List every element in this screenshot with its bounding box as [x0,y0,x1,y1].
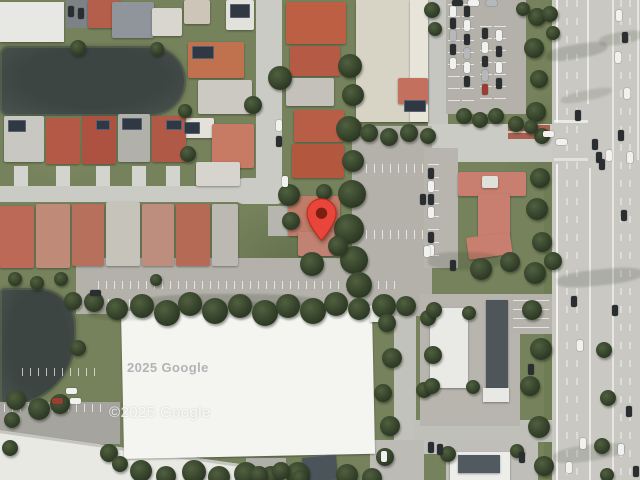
paved-pad [96,166,110,186]
tree [342,150,364,172]
tree [278,184,300,206]
car [575,110,581,121]
car [464,76,470,87]
car [633,466,639,477]
parking-line [390,164,391,173]
tree [530,168,550,188]
parking-line [94,368,95,376]
parking-line [202,281,203,289]
car [66,388,77,394]
car [468,0,479,6]
parking-line [122,281,123,289]
tree [396,296,416,316]
parking-line [398,230,399,239]
tree [250,466,268,480]
car [464,48,470,59]
map-watermark: 2025 Google [127,360,209,375]
parking-line [394,281,395,289]
parking-line [210,281,211,289]
house-roof [46,118,80,164]
car [616,10,622,21]
parking-line [30,368,31,376]
parking-line [84,404,85,412]
parking-line [422,230,423,239]
paved-pad [56,166,70,186]
parking-line [274,281,275,289]
parking-line [378,281,379,289]
parking-line [462,88,474,89]
car [482,56,488,67]
tree [272,462,290,480]
car [90,290,101,296]
car [428,194,434,205]
tree [424,346,442,364]
car [482,42,488,53]
tree [112,456,128,472]
house-roof [106,202,140,266]
tree [466,380,480,394]
car [599,159,605,170]
tree [180,146,196,162]
parking-line [98,281,99,289]
building [483,388,509,402]
parking-line [422,164,423,173]
parking-line [194,281,195,289]
tree [342,84,364,106]
parking-line [306,281,307,289]
car [450,18,456,29]
car [282,176,288,187]
tree [470,258,492,280]
car [626,406,632,417]
parking-line [76,404,77,412]
road-marking [620,0,622,480]
parking-line [282,281,283,289]
parking-line [513,327,549,328]
car [464,62,470,73]
tree [268,66,292,90]
tree [522,300,542,320]
tree [156,466,176,480]
parking-line [130,281,131,289]
tree [516,2,530,16]
parking-line [322,281,323,289]
parking-line [106,281,107,289]
car [52,398,63,404]
tree [336,116,362,142]
parking-line [330,281,331,289]
tree [428,22,442,36]
car [486,0,497,6]
parking-line [382,230,383,239]
tree [70,40,86,56]
solar-panel [404,100,426,112]
tree [30,276,44,290]
solar-panel [230,4,250,18]
car [450,44,456,55]
house-roof [142,204,174,266]
car [450,260,456,271]
house-roof [176,204,210,266]
car [424,246,430,257]
tree [346,272,372,298]
tree [300,298,326,324]
parking-line [298,281,299,289]
parking-line [314,281,315,289]
parking-line [138,281,139,289]
parking-line [448,100,460,101]
tree [130,294,154,318]
car [381,451,387,462]
tree [524,262,546,284]
parking-line [54,368,55,376]
rooftop-unit [482,176,498,188]
car [622,32,628,43]
tree [276,294,300,318]
car [276,120,282,131]
house-roof [196,162,240,186]
tree [150,274,162,286]
car [276,136,282,147]
tree [50,394,70,414]
parking-line [100,404,101,412]
parking-line [178,281,179,289]
parking-line [480,26,492,27]
townhouse-roof [286,2,346,44]
car [70,398,81,404]
car [482,28,488,39]
car [627,152,633,163]
car [450,30,456,41]
tree [300,252,324,276]
road [428,0,448,134]
tree [202,298,228,324]
car [482,70,488,81]
warehouse-building [121,306,375,459]
parking-line [22,368,23,376]
parking-line [448,88,460,89]
house-roof [72,204,104,266]
road-marking [556,164,558,480]
tree [336,464,358,480]
tree [532,232,552,252]
tree [282,212,300,230]
paved-pad [166,166,180,186]
car [496,46,502,57]
car [464,20,470,31]
house-roof [36,204,70,268]
tree [520,376,540,396]
tree [252,300,278,326]
parking-line [258,281,259,289]
parking-line [46,368,47,376]
satellite-map-view[interactable]: 2025 Google ©2025 Google [0,0,640,480]
parking-line [4,404,5,412]
car [496,30,502,41]
car [621,210,627,221]
tree [6,390,26,410]
solar-panel [8,120,26,132]
tree [360,124,378,142]
parking-line [234,281,235,289]
location-pin-icon[interactable] [306,198,337,242]
tree [228,294,252,318]
parking-line [374,164,375,173]
parking-line [78,368,79,376]
house-roof [212,204,238,266]
tree [528,416,550,438]
tree [424,378,440,394]
car [428,168,434,179]
tree [420,128,436,144]
tree [530,70,548,88]
tree [526,102,546,122]
tree [292,470,308,480]
tree [526,198,548,220]
parking-line [448,76,460,77]
tree [380,416,400,436]
tree [338,54,362,78]
tree [106,298,128,320]
tree [500,252,520,272]
tree [600,390,616,406]
parking-line [186,281,187,289]
parking-line [398,164,399,173]
tree [380,128,398,146]
car [428,442,434,453]
townhouse-roof [286,78,334,106]
road-marking [566,0,568,480]
solar-panel [96,120,110,130]
tree [400,124,418,142]
car [556,139,567,145]
parking-line [162,281,163,289]
car [428,232,434,243]
tree [54,272,68,286]
tree [178,104,192,118]
parking-line [382,164,383,173]
tree [382,348,402,368]
tree [348,298,370,320]
parking-line [494,26,506,27]
road [0,186,262,202]
parking-line [406,164,407,173]
road-marking [576,0,578,480]
tree [530,338,552,360]
parking-line [86,368,87,376]
tree [2,440,18,456]
car [496,78,502,89]
tree [64,292,82,310]
tree [178,292,202,316]
parking-line [146,281,147,289]
parking-line [250,281,251,289]
parking-line [414,230,415,239]
car [464,6,470,17]
tree [150,42,164,56]
car [618,130,624,141]
car [428,181,434,192]
solar-panel [192,46,214,59]
tree [456,108,472,124]
solar-panel [184,122,200,134]
parking-line [290,281,291,289]
house-roof [152,8,182,36]
car [571,296,577,307]
tree [182,460,206,480]
car [528,364,534,375]
solar-panel [122,118,142,130]
car [606,150,612,161]
car [482,84,488,95]
car [580,438,586,449]
drive-through-canopy [486,300,508,390]
car [566,462,572,473]
car [450,6,456,17]
tree [4,412,20,428]
house-roof [0,206,34,268]
car [68,6,74,17]
car [78,8,84,19]
parking-line [428,229,439,230]
parking-line [428,164,439,165]
parking-line [386,281,387,289]
parking-line [414,164,415,173]
car [592,139,598,150]
tree [70,340,86,356]
parking-line [266,281,267,289]
tree [546,26,560,40]
car [519,452,525,463]
tree [244,96,262,114]
parking-line [374,230,375,239]
tree [542,6,558,22]
car [577,340,583,351]
tree [596,342,612,358]
parking-line [170,281,171,289]
parking-line [406,230,407,239]
tree [378,314,396,332]
road-marking [554,158,588,161]
car [615,52,621,63]
parking-line [480,98,492,99]
tree [600,468,614,480]
car [437,444,443,455]
tree [534,456,554,476]
tree [154,300,180,326]
tree [8,272,22,286]
road-marking [612,0,614,480]
tree [130,460,152,480]
tree [544,252,562,270]
parking-line [218,281,219,289]
tree [524,120,538,134]
parking-line [114,281,115,289]
tree [462,306,476,320]
parking-line [338,281,339,289]
parking-line [92,404,93,412]
house-roof [184,0,210,24]
tree [508,116,524,132]
car [624,88,630,99]
car [496,62,502,73]
road-marking [589,168,591,480]
car [543,131,554,137]
tree [374,384,392,402]
parking-line [242,281,243,289]
solar-panel [166,120,182,130]
car [618,444,624,455]
parking-line [226,281,227,289]
car [420,194,426,205]
tree [472,112,488,128]
parking-line [494,74,506,75]
tree [594,438,610,454]
parking-line [366,164,367,173]
tree [524,38,544,58]
car [428,207,434,218]
paved-pad [132,166,146,186]
tree [424,2,440,18]
parking-line [366,230,367,239]
townhouse-roof [292,144,344,178]
tree [426,302,442,318]
car [452,0,463,6]
paved-pad [14,166,28,186]
road-marking [637,0,639,160]
house-roof [112,2,154,38]
car [612,305,618,316]
parking-line [38,368,39,376]
parking-line [462,100,474,101]
building [0,2,64,42]
building [458,455,500,473]
parking-line [390,230,391,239]
tree [488,108,504,124]
tree [28,398,50,420]
parking-line [70,368,71,376]
parking-line [62,368,63,376]
map-watermark-copyright: ©2025 Google [109,404,211,421]
road-marking [554,120,588,123]
pond [0,46,186,116]
car [450,58,456,69]
tree [338,180,366,208]
tree [324,292,348,316]
car [464,34,470,45]
parking-line [494,98,506,99]
townhouse-roof [290,46,340,76]
